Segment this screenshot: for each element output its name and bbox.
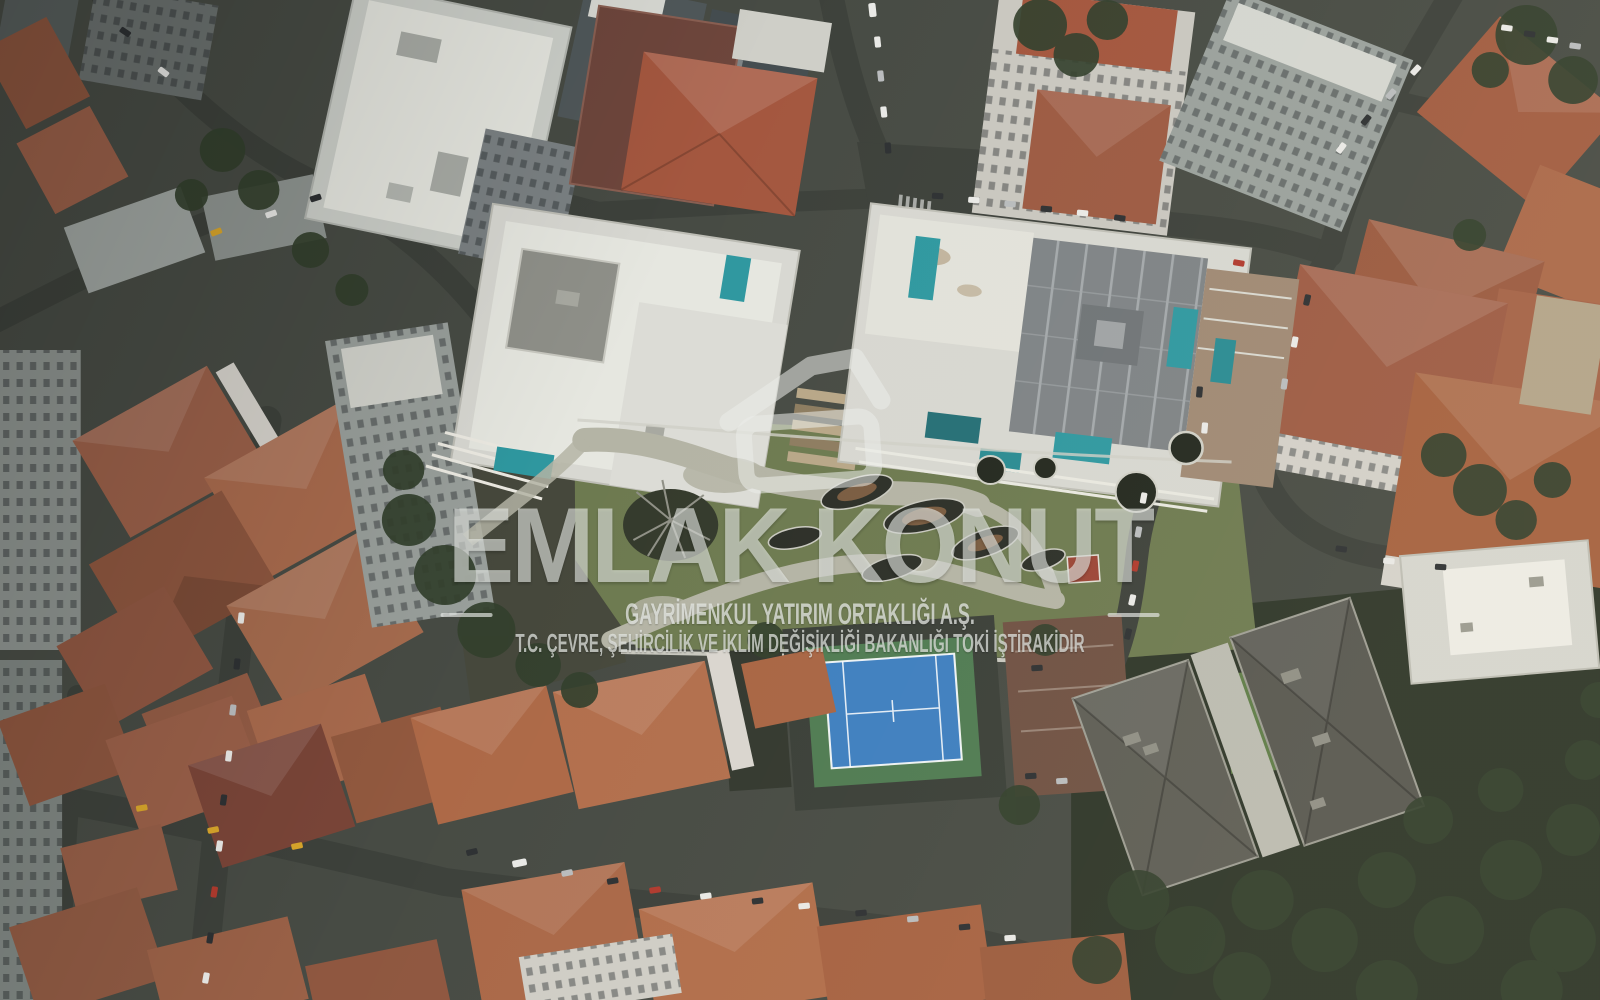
red-roof-shed [1067, 555, 1100, 583]
white-flat-building [1400, 540, 1599, 683]
aerial-photo-screenshot: EMLAK KONUT GAYRİMENKUL YATIRIM ORTAKLIĞ… [0, 0, 1600, 1000]
aerial-photo [0, 0, 1600, 1000]
